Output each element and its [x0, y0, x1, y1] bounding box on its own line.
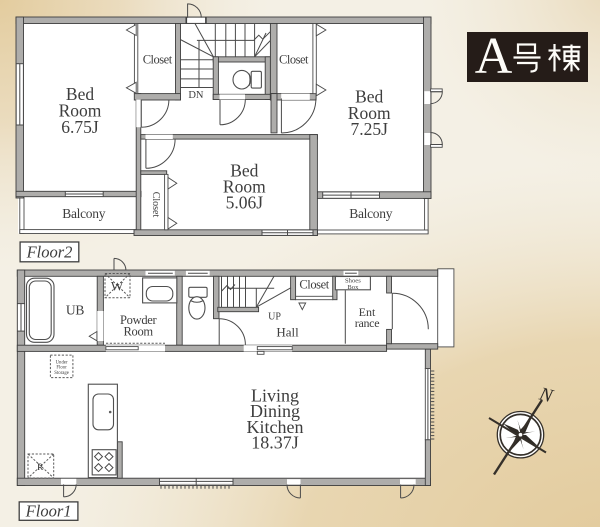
- svg-text:R: R: [37, 463, 44, 473]
- svg-text:A: A: [475, 28, 513, 85]
- svg-text:6.75J: 6.75J: [61, 117, 99, 137]
- svg-text:Hall: Hall: [276, 324, 299, 339]
- svg-text:Balcony: Balcony: [349, 206, 392, 221]
- svg-text:7.25J: 7.25J: [350, 119, 388, 139]
- svg-text:Floor1: Floor1: [25, 502, 72, 521]
- svg-text:Balcony: Balcony: [62, 206, 105, 221]
- svg-text:UB: UB: [66, 303, 84, 318]
- svg-text:Closet: Closet: [299, 278, 329, 292]
- svg-text:Floor: Floor: [56, 366, 67, 371]
- svg-text:Closet: Closet: [150, 192, 161, 218]
- svg-text:rance: rance: [355, 316, 379, 330]
- svg-text:Storage: Storage: [54, 371, 69, 376]
- svg-text:5.06J: 5.06J: [226, 192, 264, 212]
- svg-text:Floor2: Floor2: [26, 242, 73, 261]
- svg-text:Box: Box: [347, 284, 359, 291]
- svg-text:Room: Room: [124, 324, 154, 338]
- svg-text:Closet: Closet: [279, 53, 309, 67]
- svg-text:18.37J: 18.37J: [251, 433, 299, 453]
- svg-text:Under: Under: [56, 360, 68, 365]
- svg-text:UP: UP: [268, 312, 281, 323]
- svg-text:W: W: [111, 279, 124, 294]
- svg-text:DN: DN: [188, 90, 204, 101]
- svg-text:Closet: Closet: [143, 53, 173, 67]
